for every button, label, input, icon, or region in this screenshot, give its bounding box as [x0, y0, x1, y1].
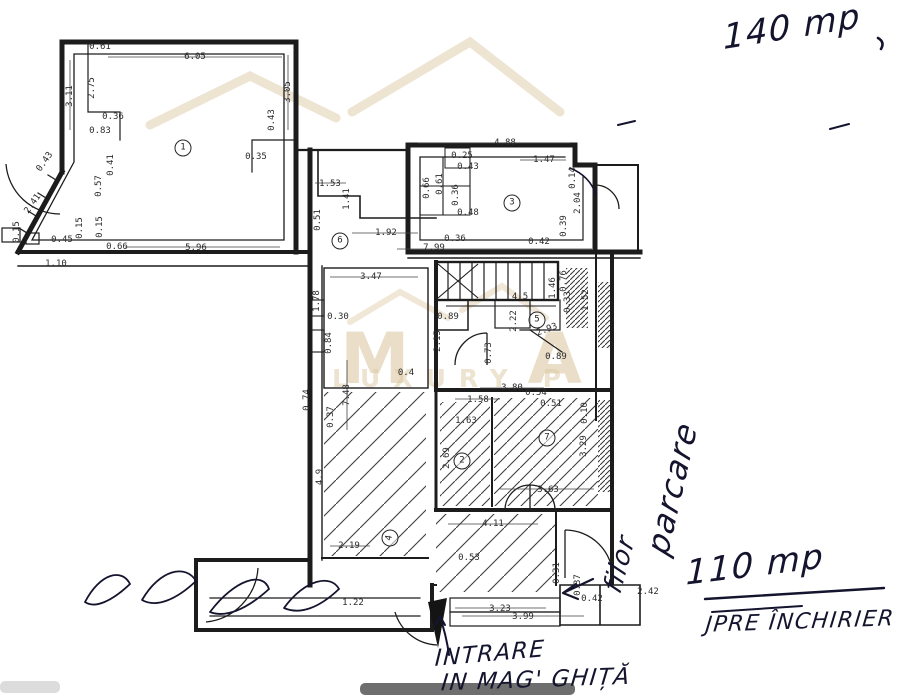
scan-smudge: [0, 681, 575, 695]
watermark-roof-icon: [150, 42, 560, 322]
floorplan-scan: MA LUXURY P: [0, 0, 911, 695]
floorplan-drawing: [0, 0, 911, 695]
staircase: [436, 262, 558, 306]
